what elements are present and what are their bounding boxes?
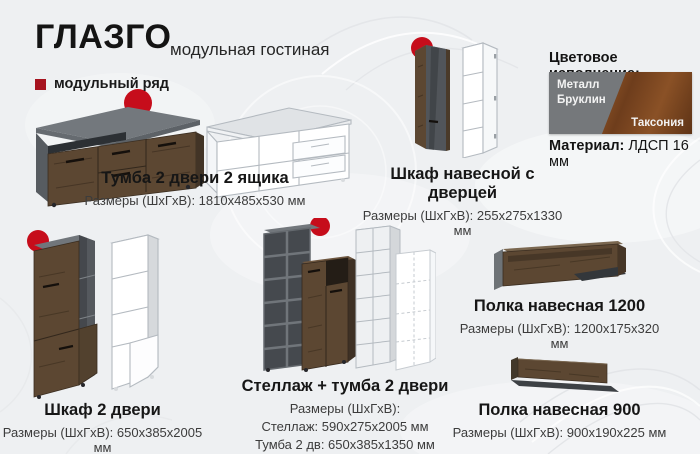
item-dims: Размеры (ШхГхВ): 900х190х225 мм: [452, 425, 667, 440]
material-line: Материал:ЛДСП 16 мм: [549, 138, 700, 170]
item-dims: Стеллаж: 590х275х2005 мм: [230, 419, 460, 434]
page-title: ГЛАЗГО: [35, 18, 171, 57]
item-title: Шкаф 2 двери: [0, 401, 205, 420]
item-card-cabinet: Шкаф 2 двери Размеры (ШхГхВ): 650х385х20…: [0, 401, 205, 454]
item-dims: Размеры (ШхГхВ): 650х385х2005 мм: [0, 425, 205, 454]
item-card-tumba: Тумба 2 двери 2 ящика Размеры (ШхГхВ): 1…: [30, 169, 360, 208]
item-title: Тумба 2 двери 2 ящика: [30, 169, 360, 188]
color-swatch: Металл Бруклин Таксония: [549, 72, 692, 134]
cabinet-2door-line-drawing: [106, 227, 180, 397]
material-label: Материал:: [549, 138, 624, 154]
series-label: модульный ряд: [54, 76, 169, 92]
swatch-label-metal: Металл Бруклин: [557, 78, 623, 108]
shelving-cabinet-line-drawing: [352, 222, 436, 374]
item-title: Стеллаж + тумба 2 двери: [230, 377, 460, 396]
item-card-wall-cabinet: Шкаф навесной с дверцей Размеры (ШхГхВ):…: [355, 165, 570, 238]
item-dims: Размеры (ШхГхВ):: [230, 401, 460, 416]
item-card-shelf-1200: Полка навесная 1200 Размеры (ШхГхВ): 120…: [452, 297, 667, 351]
shelving-cabinet-render: [256, 218, 356, 376]
item-title: Шкаф навесной с дверцей: [355, 165, 570, 203]
red-square-icon: [35, 79, 46, 90]
wall-cabinet-render: [406, 33, 458, 155]
item-dims: Тумба 2 дв: 650х385х1350 мм: [230, 437, 460, 452]
cabinet-2door-render: [25, 227, 110, 399]
series-row: модульный ряд: [35, 76, 169, 92]
page-subtitle: модульная гостиная: [170, 40, 329, 60]
item-card-shelving: Стеллаж + тумба 2 двери Размеры (ШхГхВ):…: [230, 377, 460, 452]
shelf-900-render: [503, 350, 631, 398]
item-dims: Размеры (ШхГхВ): 255х275х1330 мм: [355, 208, 570, 238]
swatch-label-wood: Таксония: [631, 117, 684, 129]
item-dims: Размеры (ШхГхВ): 1200х175х320 мм: [452, 321, 667, 351]
item-title: Полка навесная 900: [452, 401, 667, 420]
item-card-shelf-900: Полка навесная 900 Размеры (ШхГхВ): 900х…: [452, 401, 667, 440]
shelf-1200-render: [490, 236, 638, 296]
item-title: Полка навесная 1200: [452, 297, 667, 316]
wall-cabinet-line-drawing: [456, 36, 504, 158]
item-dims: Размеры (ШхГхВ): 1810х485х530 мм: [30, 193, 360, 208]
catalog-page: ГЛАЗГО модульная гостиная модульный ряд …: [0, 0, 700, 454]
